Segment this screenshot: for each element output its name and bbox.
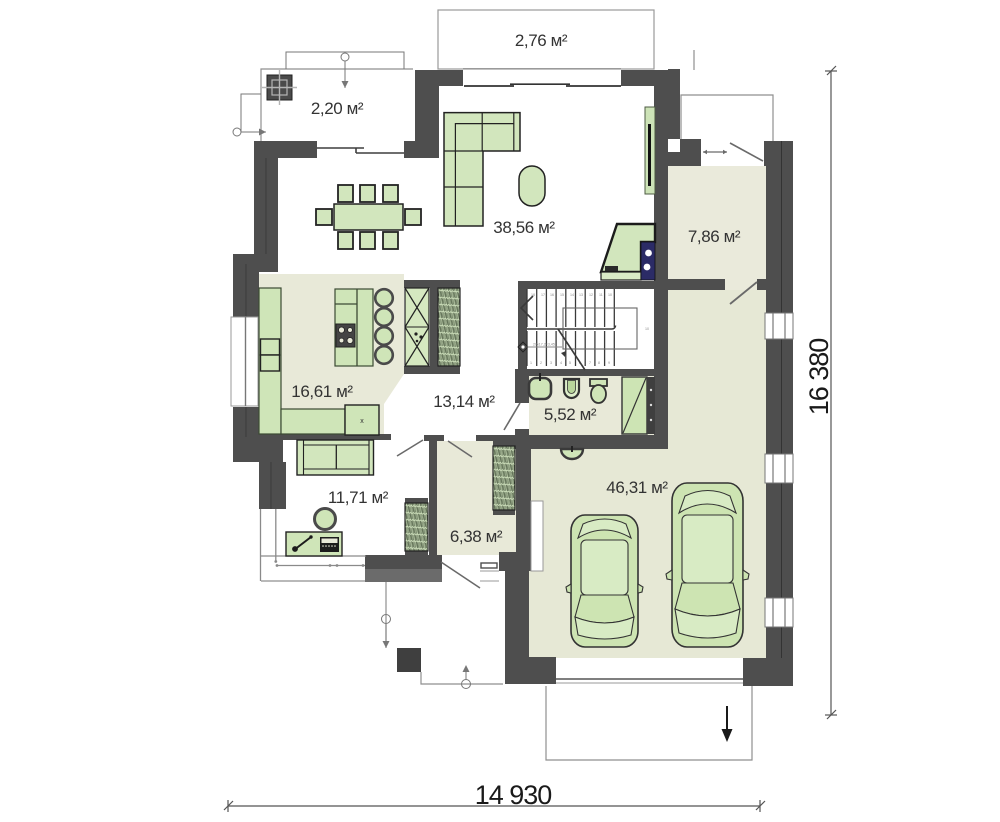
svg-text:16: 16 <box>550 293 554 297</box>
svg-text:9: 9 <box>608 361 610 365</box>
svg-text:4: 4 <box>560 361 562 365</box>
svg-text:5: 5 <box>569 361 571 365</box>
svg-text:14 930: 14 930 <box>475 780 552 810</box>
svg-text:x: x <box>360 418 364 425</box>
svg-text:10: 10 <box>645 327 649 331</box>
svg-text:12: 12 <box>589 293 593 297</box>
svg-text:2,76 м²: 2,76 м² <box>515 31 568 50</box>
svg-text:2,20 м²: 2,20 м² <box>311 99 364 118</box>
svg-text:7: 7 <box>589 361 591 365</box>
svg-text:16 380: 16 380 <box>804 339 834 416</box>
svg-text:7,86 м²: 7,86 м² <box>688 227 741 246</box>
svg-text:20x17,2=3,45: 20x17,2=3,45 <box>533 343 555 347</box>
svg-text:3: 3 <box>550 361 552 365</box>
svg-text:5,52 м²: 5,52 м² <box>544 405 597 424</box>
svg-text:38,56 м²: 38,56 м² <box>493 218 555 237</box>
svg-text:10: 10 <box>608 293 612 297</box>
svg-text:13,14 м²: 13,14 м² <box>433 392 495 411</box>
svg-text:13: 13 <box>579 293 583 297</box>
svg-text:46,31 м²: 46,31 м² <box>606 478 668 497</box>
svg-text:11: 11 <box>599 293 603 297</box>
svg-text:15: 15 <box>560 293 564 297</box>
svg-text:1: 1 <box>530 361 532 365</box>
svg-text:11,71 м²: 11,71 м² <box>328 488 389 507</box>
svg-text:14: 14 <box>570 293 574 297</box>
svg-text:6,38 м²: 6,38 м² <box>450 527 503 546</box>
svg-text:17: 17 <box>541 293 545 297</box>
svg-text:2: 2 <box>540 361 542 365</box>
svg-text:8: 8 <box>598 361 600 365</box>
svg-text:16,61 м²: 16,61 м² <box>291 382 353 401</box>
